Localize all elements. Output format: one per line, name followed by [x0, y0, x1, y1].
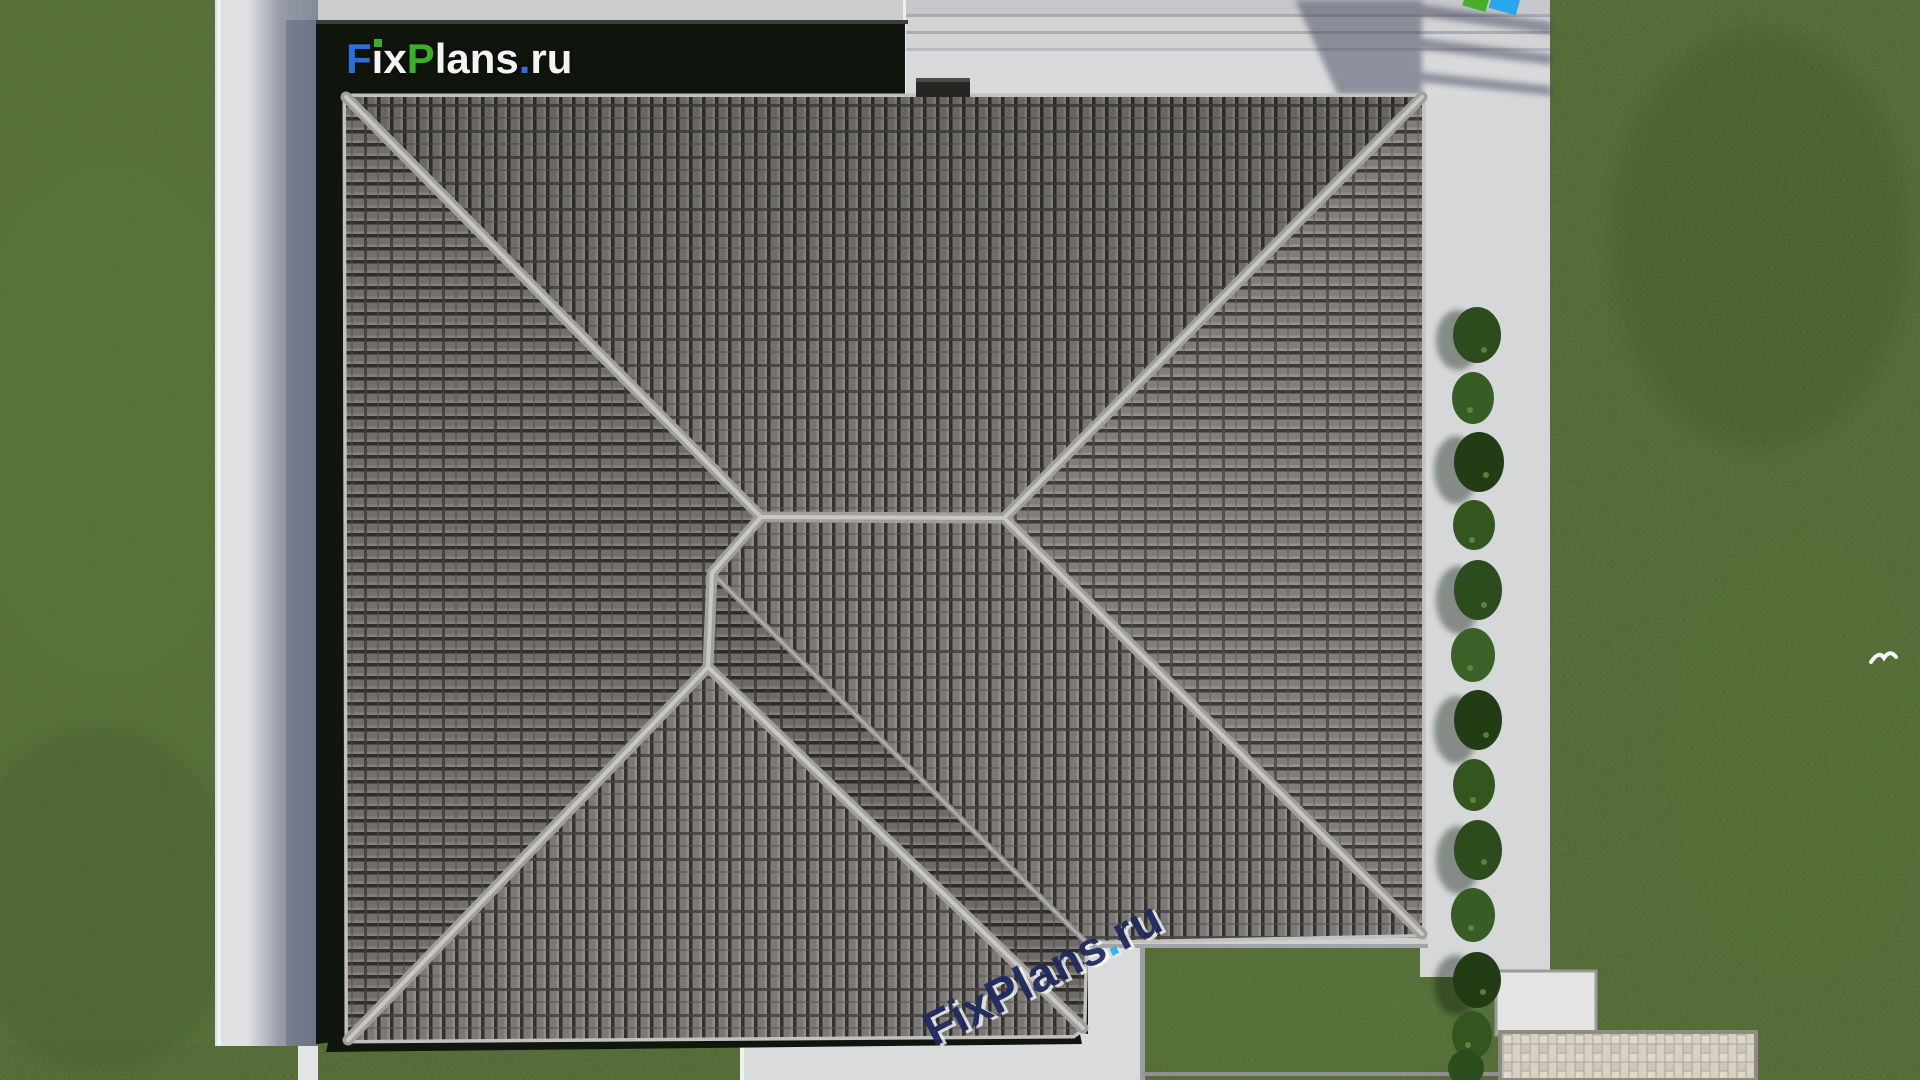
herringbone-patio: [1500, 1032, 1756, 1080]
fixplans-logo: FixPlans.ru: [346, 38, 572, 80]
logo-i-dot-green: [374, 39, 382, 47]
logo-letters-ru: ru: [530, 35, 572, 82]
chimney: [916, 78, 970, 97]
roof: [346, 78, 1422, 1040]
logo-dot: .: [519, 35, 531, 82]
scene-graphics: [0, 0, 1920, 1080]
aerial-render-scene: FixPlans.ru FixPlans.ru: [0, 0, 1920, 1080]
logo-letters-lans: lans: [435, 35, 519, 82]
logo-letter-f: F: [346, 35, 372, 82]
logo-letters-ix: ix: [372, 38, 407, 80]
concrete-pad: [1496, 971, 1596, 1035]
logo-letter-p: P: [407, 35, 435, 82]
